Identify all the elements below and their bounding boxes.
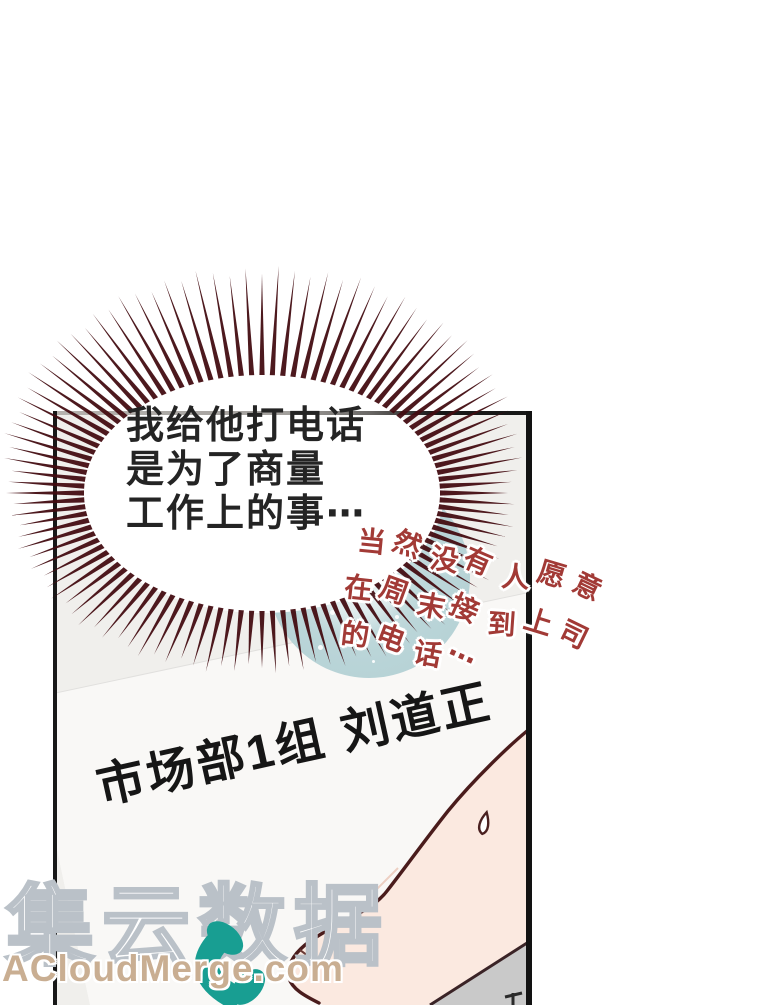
speech-line: 我给他打电话 — [126, 404, 366, 448]
panel-border-right — [526, 411, 532, 1005]
speech-line: 工作上的事⋯ — [126, 492, 366, 536]
comic-page: 市场部1组 刘道正 我给他打电话 是为了商量 工作上的事⋯ — [0, 0, 760, 1005]
speech-bubble-text: 我给他打电话 是为了商量 工作上的事⋯ — [126, 404, 366, 536]
speech-line: 是为了商量 — [126, 448, 366, 492]
speech-bubble-core — [0, 0, 760, 1005]
watermark-latin-text: ACloudMerge.com — [2, 948, 344, 990]
